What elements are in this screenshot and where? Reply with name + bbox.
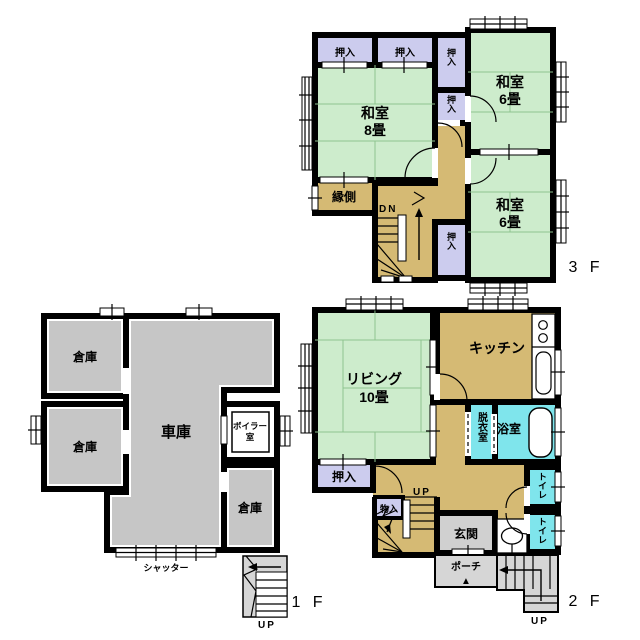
- room-size-label: 10畳: [359, 389, 389, 405]
- room-label: 和室: [361, 105, 389, 121]
- room-label: ボイラー: [233, 421, 267, 431]
- room-size-label: 8畳: [364, 122, 386, 138]
- closet-label: 物入: [380, 503, 398, 514]
- kitchen-counter: [532, 314, 555, 399]
- washbasin: [497, 519, 527, 553]
- floor-plan-3f: 押入 押入 押入 押入 押入 和室 8畳 和室 6畳 和室 6畳 縁側 DN 3…: [299, 16, 604, 296]
- shutter-label: シャッター: [143, 562, 188, 573]
- room-label: 倉庫: [72, 439, 97, 454]
- stove-burner-icon: [539, 334, 548, 343]
- floor-plan-2f: リビング 10畳 キッチン 脱衣室 浴室 トイレ トイレ 押入 物入 玄関 ポー…: [298, 296, 604, 627]
- window-symbol: [346, 296, 403, 313]
- floor-label-3f: 3 F: [568, 259, 603, 276]
- engawa-label: 縁側: [332, 189, 356, 204]
- stairs-dn-label: DN: [379, 204, 397, 215]
- floor-label-1f: 1 F: [291, 594, 326, 611]
- kitchen-sink-icon: [536, 352, 551, 394]
- closet-label: 押入: [332, 469, 356, 484]
- room-label: 脱衣室: [476, 411, 488, 442]
- closet-label: 押入: [395, 46, 415, 59]
- stairs-up-label: UP: [413, 487, 431, 498]
- porch-label: ポーチ: [451, 560, 481, 573]
- stairs-up-label: UP: [531, 616, 549, 627]
- closet-label: 押入: [446, 231, 457, 251]
- room-label: 和室: [496, 74, 524, 90]
- stairs-up-1f: [243, 556, 287, 617]
- floor-plan-drawing: 押入 押入 押入 押入 押入 和室 8畳 和室 6畳 和室 6畳 縁側 DN 3…: [0, 0, 640, 640]
- room-label: 室: [246, 432, 255, 442]
- room-label: 浴室: [497, 421, 521, 436]
- floor-plan-sheet: 押入 押入 押入 押入 押入 和室 8畳 和室 6畳 和室 6畳 縁側 DN 3…: [0, 0, 640, 640]
- closet-label: 押入: [446, 94, 457, 114]
- closet-label: 押入: [335, 46, 355, 59]
- room-label: トイレ: [537, 517, 547, 544]
- room-label: 倉庫: [72, 349, 97, 364]
- stairs-up-label: UP: [258, 620, 276, 631]
- stove-burner-icon: [539, 321, 548, 330]
- bathtub-icon: [529, 408, 552, 457]
- room-label: 車庫: [161, 423, 191, 441]
- floor-label-2f: 2 F: [568, 593, 603, 610]
- washbasin-icon: [502, 528, 523, 544]
- room-label: 倉庫: [237, 500, 262, 515]
- porch-direction-icon: ▲: [461, 576, 471, 587]
- stairs-up-2f-exterior: [497, 555, 558, 612]
- window-symbol: [298, 344, 315, 433]
- closet-label: 押入: [446, 47, 457, 67]
- entrance-label: 玄関: [454, 526, 478, 541]
- room-label: トイレ: [537, 472, 547, 499]
- floor-plan-1f: 倉庫 倉庫 倉庫 車庫 ボイラー 室 シャッター UP 1 F: [28, 304, 327, 631]
- room-label: 和室: [496, 197, 524, 213]
- room-size-label: 6畳: [499, 214, 521, 230]
- room-label: キッチン: [469, 340, 525, 356]
- room-closet-3f-e: [435, 222, 468, 278]
- room-label: リビング: [346, 371, 402, 387]
- window-symbol: [468, 296, 528, 313]
- room-size-label: 6畳: [499, 91, 521, 107]
